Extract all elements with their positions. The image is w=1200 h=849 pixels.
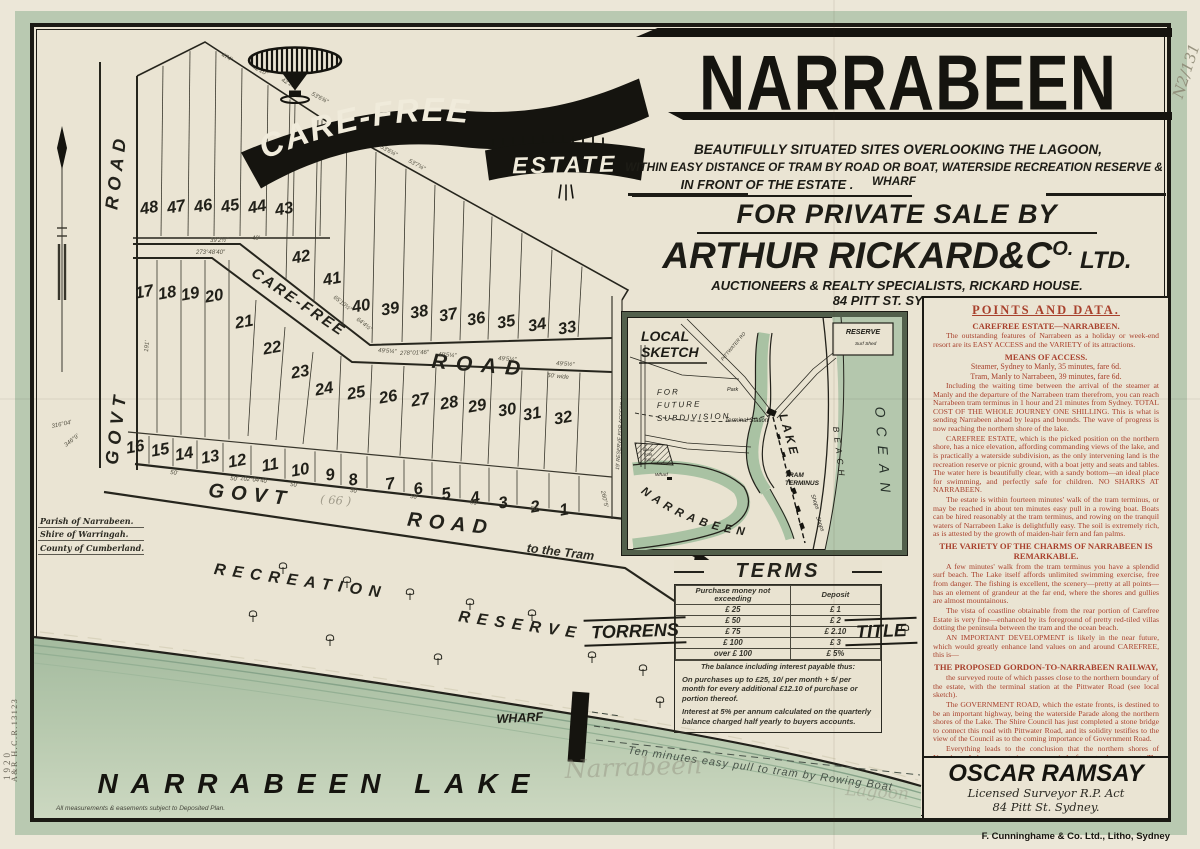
fold-crease [0, 398, 1200, 400]
sketch-title-2: SKETCH [641, 344, 699, 360]
shire-line: Shire of Warringah. [38, 528, 144, 542]
terms-note: On purchases up to £25, 10/ per month + … [682, 675, 874, 703]
surf-shed-label: Surf Shed [855, 341, 877, 347]
future-1: FOR [657, 387, 680, 397]
terms-cell: £ 100 [676, 637, 791, 648]
terms-cell: £ 25 [676, 604, 791, 615]
subtitle-line-3: IN FRONT OF THE ESTATE . [622, 177, 912, 192]
measurements-disclaimer: All measurements & easements subject to … [56, 805, 225, 812]
lake-arm [766, 491, 790, 539]
terms-row: £ 25£ 1 [676, 604, 881, 615]
shops-2: Shops [814, 516, 825, 533]
points-paragraph: A few minutes' walk from the tram termin… [933, 563, 1159, 606]
agent-role: AUCTIONEERS & REALTY SPECIALISTS, RICKAR… [620, 278, 1174, 293]
points-paragraph: Everything leads to the conclusion that … [933, 745, 1159, 756]
ribbon-tassel [559, 185, 573, 201]
local-sketch-inset: LOCAL SKETCH RESERVE Surf Shed FOR FUTUR… [622, 312, 907, 555]
rule [697, 232, 1097, 234]
title-label: TITLE [845, 617, 918, 646]
terms-title: TERMS [674, 560, 882, 583]
points-heading: CAREFREE ESTATE—NARRABEEN. [933, 321, 1159, 331]
fold-crease [833, 0, 835, 849]
sketch-title-1: LOCAL [641, 328, 689, 344]
terms-col1-header: Purchase money not exceeding [676, 586, 791, 605]
points-heading: THE PROPOSED GORDON-TO-NARRABEEN RAILWAY… [933, 662, 1159, 672]
subtitle-line-1: BEAUTIFULLY SITUATED SITES OVERLOOKING T… [622, 142, 1174, 157]
agent-name-main: ARTHUR RICKARD&C [662, 235, 1052, 276]
pittwater-road-label: PITTWATER RD [720, 331, 748, 362]
tram-terminus-2: TERMINUS [785, 480, 820, 487]
surveyor-box: OSCAR RAMSAY Licensed Surveyor R.P. Act … [922, 756, 1168, 818]
terms-row: over £ 100£ 5% [676, 648, 881, 659]
terms-balance-note: The balance including interest payable t… [675, 660, 881, 672]
parish-box: Parish of Narrabeen. Shire of Warringah.… [38, 514, 144, 555]
points-heading: THE VARIETY OF THE CHARMS OF NARRABEEN I… [933, 541, 1159, 561]
rule [628, 193, 748, 196]
local-sketch-art: LOCAL SKETCH RESERVE Surf Shed FOR FUTUR… [627, 317, 902, 550]
points-paragraph: The GOVERNMENT ROAD, which the estate fr… [933, 701, 1159, 744]
points-heading: MEANS OF ACCESS. [933, 352, 1159, 362]
terms-cell: £ 50 [676, 615, 791, 626]
torrens-label: TORRENS [584, 616, 687, 647]
terms-notes: On purchases up to £25, 10/ per month + … [675, 672, 881, 732]
parish-line: Parish of Narrabeen. [38, 514, 144, 528]
logo-art: CARE-FREE ESTATE [235, 36, 655, 206]
points-paragraph: AN IMPORTANT DEVELOPMENT is likely in th… [933, 634, 1159, 660]
sketch-wharf-label: Wharf [655, 472, 668, 478]
agent-name: ARTHUR RICKARD&CO. LTD. [620, 235, 1174, 277]
sale-line: FOR PRIVATE SALE BY [620, 199, 1174, 230]
points-paragraph: Tram, Manly to Narrabeen, 39 minutes, fa… [933, 372, 1159, 381]
points-paragraph: Including the waiting time between the a… [933, 382, 1159, 433]
lamp-bowl-icon [249, 48, 341, 104]
points-paragraph: Steamer, Sydney to Manly, 35 minutes, fa… [933, 362, 1159, 371]
park-label: Park [727, 387, 739, 393]
terms-cell: £ 5% [790, 648, 880, 659]
points-title: POINTS AND DATA. [933, 303, 1159, 318]
reserve-label: RESERVE [846, 327, 881, 336]
tram-terminus-1: TRAM [785, 472, 804, 479]
terms-cell: £ 1 [790, 604, 880, 615]
lake-label: LAKE [776, 412, 802, 459]
surveyor-name: OSCAR RAMSAY [924, 762, 1168, 786]
points-paragraph: The vista of coastline obtainable from t… [933, 607, 1159, 633]
points-paragraph: The estate is within fourteen minutes' w… [933, 496, 1159, 539]
logo-estate-text: ESTATE [512, 151, 618, 179]
estate-poster: 19' RESERVE FOR ACCESS AND DRAINAGE48474… [0, 0, 1200, 849]
agent-name-ltd: LTD. [1073, 247, 1131, 274]
agent-name-sup: O. [1052, 238, 1073, 260]
headline-narrabeen: NARRABEEN [644, 34, 1172, 132]
points-paragraph: The outstanding features of Narrabeen as… [933, 332, 1159, 349]
land-3: SALE [645, 457, 656, 462]
future-2: FUTURE [657, 399, 702, 410]
surveyor-address: 84 Pitt St. Sydney. [924, 800, 1168, 814]
surveyor-role: Licensed Surveyor R.P. Act [924, 786, 1168, 800]
carefree-estate-logo: CARE-FREE ESTATE [235, 36, 655, 206]
printer-imprint: F. Cunninghame & Co. Ltd., Litho, Sydney [878, 831, 1170, 842]
shops-1: Shops [809, 494, 820, 511]
terms-note: Interest at 5% per annum calculated on t… [682, 707, 874, 726]
terms-cell: over £ 100 [676, 648, 791, 659]
terms-col2-header: Deposit [790, 586, 880, 605]
points-paragraph: the surveyed route of which passes close… [933, 674, 1159, 700]
terminal-station-label: Terminal Station [725, 418, 769, 424]
left-margin-year: 1920 [2, 750, 12, 780]
beach-line [813, 317, 828, 550]
sketch-wharf-mark [667, 477, 672, 480]
terms-box: Purchase money not exceeding Deposit £ 2… [674, 584, 882, 733]
points-paragraph: CAREFREE ESTATE, which is the picked pos… [933, 435, 1159, 495]
terms-cell: £ 75 [676, 626, 791, 637]
rule [1046, 193, 1166, 196]
county-line: County of Cumberland. [38, 541, 144, 555]
points-and-data-panel: POINTS AND DATA.CAREFREE ESTATE—NARRABEE… [922, 296, 1168, 756]
sale-block: FOR PRIVATE SALE BY ARTHUR RICKARD&CO. L… [620, 199, 1174, 308]
